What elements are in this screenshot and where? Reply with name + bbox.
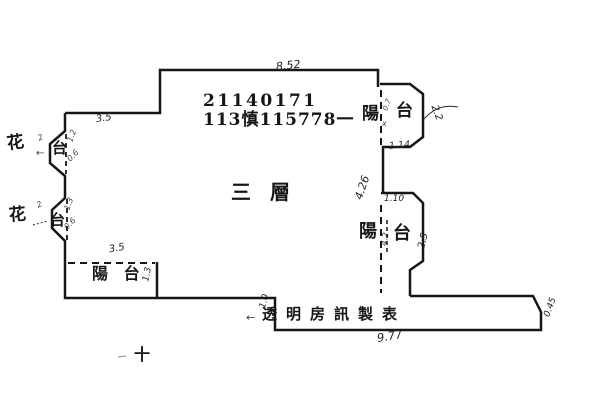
dim-balcony-mid-right-inner: 4.2 bbox=[380, 232, 391, 247]
balcony-mid-right-label-tai: 台 bbox=[393, 225, 411, 243]
floor-plan-walls bbox=[0, 0, 602, 401]
balcony-top-right-label-yang: 陽 bbox=[362, 106, 379, 123]
registration-number: 21140171 bbox=[203, 93, 318, 110]
flower-bed-1-arrow-icon: ← bbox=[36, 149, 44, 159]
balcony-mid-right-label-yang: 陽 bbox=[359, 223, 377, 241]
floor-label: 三 層 bbox=[231, 182, 296, 202]
cross-mark: 十 bbox=[134, 347, 150, 363]
dim-balcony-mid-right-width: 1.10 bbox=[384, 195, 404, 204]
balcony-top-right-label-tai: 台 bbox=[396, 103, 413, 120]
step-arrow-icon: ← bbox=[246, 312, 255, 323]
dim-balcony-top-right-width: 1.14 bbox=[389, 140, 411, 151]
flower-bed-1-label-hua: 花 bbox=[6, 134, 25, 153]
wall-left-and-bottom bbox=[50, 113, 541, 330]
balcony-bottom-left-label: 陽 台 bbox=[92, 266, 145, 282]
maker-label: 透明房訊製表 bbox=[262, 307, 406, 322]
flower-bed-1-label-tai: 台 bbox=[52, 141, 67, 156]
dim-balcony-top-right-mark-2: x bbox=[382, 120, 387, 128]
leader-flower-bed-2 bbox=[33, 221, 48, 225]
permit-number: 113慎115778一 bbox=[203, 112, 354, 129]
flower-bed-2-label-hua: 花 bbox=[8, 206, 26, 224]
floor-plan: 21140171 113慎115778一 三 層 8.52 陽 台 0.7 x … bbox=[0, 0, 602, 401]
dim-top-width: 8.52 bbox=[275, 59, 301, 73]
tick-near-cross bbox=[118, 356, 126, 357]
